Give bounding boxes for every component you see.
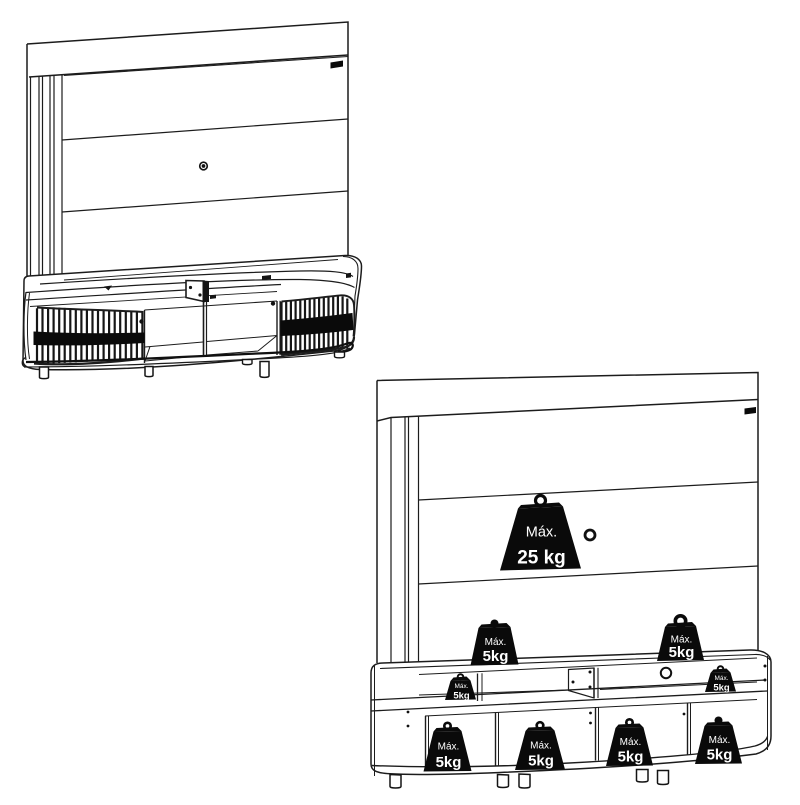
svg-text:Máx.: Máx. bbox=[530, 741, 552, 752]
svg-text:5kg: 5kg bbox=[618, 749, 644, 766]
svg-text:25 kg: 25 kg bbox=[517, 547, 566, 568]
svg-text:Máx.: Máx. bbox=[454, 683, 468, 690]
svg-text:Máx.: Máx. bbox=[438, 742, 460, 753]
svg-text:Máx.: Máx. bbox=[620, 737, 642, 748]
svg-text:Máx.: Máx. bbox=[526, 524, 557, 540]
svg-text:Máx.: Máx. bbox=[485, 637, 507, 648]
svg-text:5kg: 5kg bbox=[669, 644, 695, 661]
svg-text:5kg: 5kg bbox=[453, 691, 470, 702]
svg-text:5kg: 5kg bbox=[483, 648, 509, 665]
svg-text:5kg: 5kg bbox=[436, 754, 462, 771]
svg-text:Máx.: Máx. bbox=[714, 675, 728, 682]
svg-text:5kg: 5kg bbox=[713, 683, 730, 694]
svg-text:Máx.: Máx. bbox=[709, 735, 731, 746]
svg-text:5kg: 5kg bbox=[528, 753, 554, 770]
svg-text:5kg: 5kg bbox=[707, 747, 733, 764]
